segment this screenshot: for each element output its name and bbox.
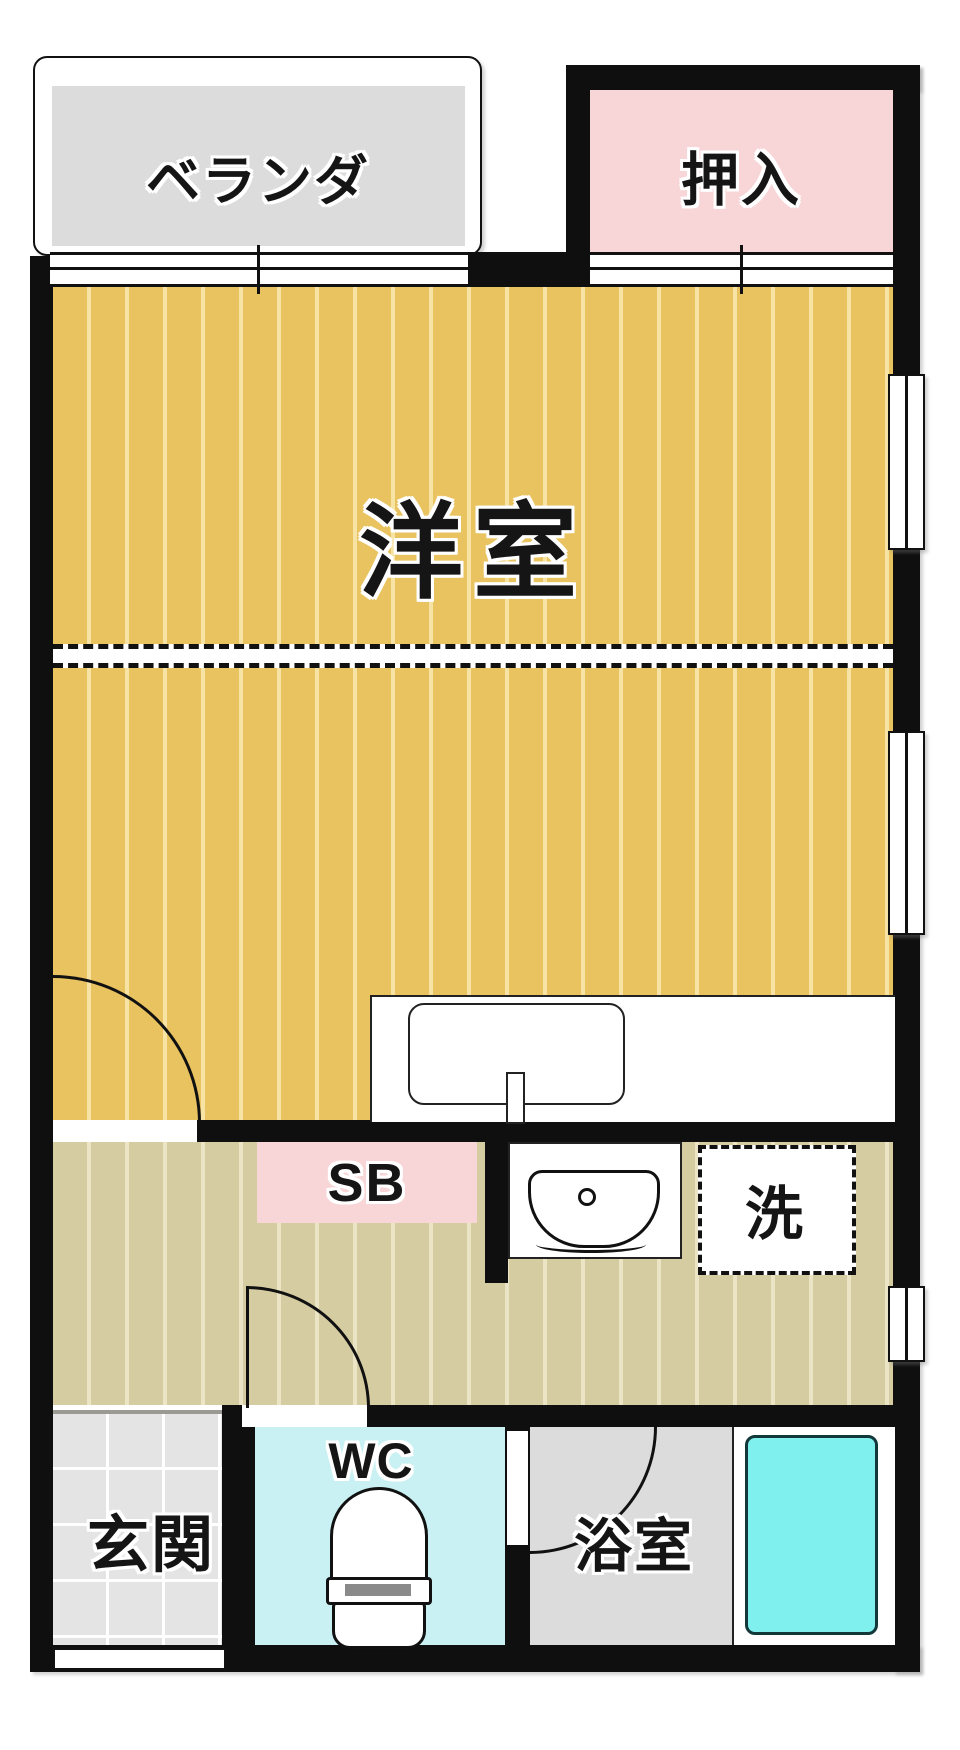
window-line	[905, 733, 908, 933]
toilet-seat-icon	[326, 1577, 432, 1605]
dashed-partition	[53, 644, 893, 668]
western-room-door-opening	[53, 1120, 197, 1142]
wall-top-middle	[466, 252, 590, 287]
western-room-label: 洋室	[359, 468, 587, 619]
bathroom-label: 浴室	[574, 1499, 694, 1583]
wall-closet-top	[566, 65, 920, 90]
wall-wc-left	[222, 1427, 255, 1645]
wc-label: WC	[328, 1432, 413, 1490]
entrance-step-line	[53, 1410, 222, 1414]
faucet-icon	[506, 1072, 525, 1124]
floor-plan: ベランダ 押入 洋室 SB	[0, 0, 960, 1750]
window-line	[905, 1288, 908, 1360]
window-right-upper-icon	[888, 374, 925, 550]
washbasin-drain-icon	[578, 1188, 596, 1206]
bathtub-icon	[745, 1435, 878, 1635]
closet-label: 押入	[681, 133, 801, 217]
window-right-lower-icon	[888, 1286, 925, 1362]
window-tick	[257, 245, 260, 294]
veranda-window-icon	[50, 252, 468, 287]
washbasin-base-icon	[536, 1236, 646, 1253]
window-line	[905, 376, 908, 548]
sliding-door-tick	[740, 245, 743, 294]
window-right-middle-icon	[888, 731, 925, 935]
wc-door-opening	[242, 1405, 367, 1427]
closet-sliding-door-icon	[590, 252, 893, 287]
shoe-box-label: SB	[327, 1152, 406, 1214]
wall-stub-basin	[485, 1142, 508, 1283]
wall-left	[30, 256, 53, 1672]
laundry-label: 洗	[745, 1167, 805, 1251]
washbasin	[508, 1142, 682, 1259]
front-door-icon	[53, 1648, 226, 1670]
veranda-label: ベランダ	[146, 137, 370, 216]
toilet-hinge-icon	[345, 1584, 411, 1596]
entrance-label: 玄関	[87, 1494, 215, 1584]
bathroom-door-opening	[507, 1431, 528, 1545]
toilet-base-icon	[332, 1599, 426, 1649]
